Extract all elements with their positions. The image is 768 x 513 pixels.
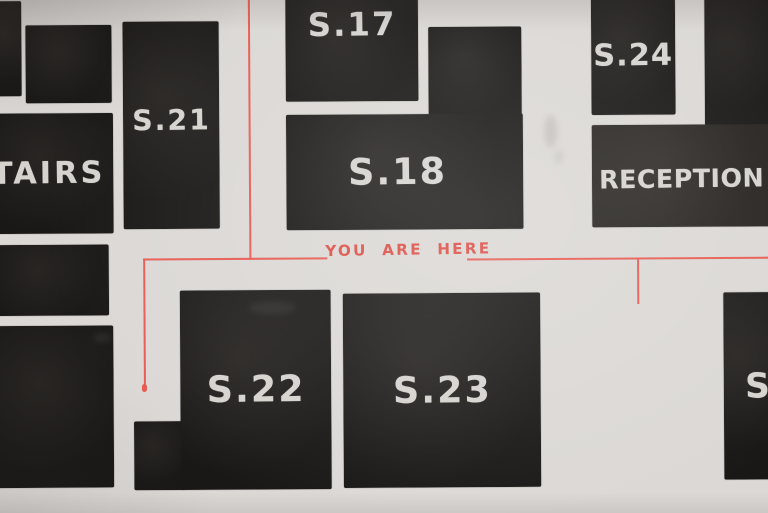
path-down-stub	[637, 257, 639, 304]
room-s24: S.24	[591, 0, 676, 115]
room-reception: RECEPTION	[592, 124, 768, 227]
paint-smudge	[554, 150, 563, 164]
path-horizontal-right-segment	[467, 257, 768, 261]
room-s22-extension	[134, 421, 185, 490]
you-are-here-label: YOU ARE HERE	[325, 240, 469, 261]
room-block-top-left	[0, 1, 22, 96]
path-left-descender	[143, 258, 146, 391]
room-label-s23: S.23	[392, 369, 491, 412]
room-label-s22: S.22	[206, 368, 305, 411]
path-vertical-main	[248, 0, 252, 260]
room-block-bottom-left	[0, 325, 114, 488]
room-s25-partial: S	[723, 292, 768, 480]
paint-smudge	[544, 115, 557, 147]
room-s18-upper-arm	[428, 26, 522, 118]
room-s18: S.18	[286, 113, 524, 230]
room-label-stairs: TAIRS	[0, 155, 106, 192]
room-label-s24: S.24	[593, 37, 673, 73]
paint-smudge	[93, 333, 111, 343]
path-horizontal-left-segment	[143, 257, 327, 260]
room-s22: S.22	[180, 290, 332, 490]
room-s21: S.21	[122, 21, 219, 229]
room-label-s17: S.17	[307, 5, 396, 45]
room-stairs: TAIRS	[0, 113, 114, 234]
floor-plan-map: TAIRS S.21 S.17 S.18 S.24 RECEPTION S.22	[0, 0, 768, 513]
room-label-s25-partial: S	[745, 365, 768, 406]
room-label-s18: S.18	[348, 151, 447, 194]
room-label-reception: RECEPTION	[599, 163, 764, 195]
room-block-mid-left	[0, 245, 109, 317]
room-s17: S.17	[285, 0, 418, 102]
room-s23: S.23	[343, 292, 542, 488]
room-block-top-right-arm	[704, 0, 768, 126]
room-label-s21: S.21	[132, 103, 211, 137]
path-end-dot	[142, 384, 147, 392]
room-block-top-left-2	[25, 25, 111, 103]
map-canvas: TAIRS S.21 S.17 S.18 S.24 RECEPTION S.22	[0, 0, 768, 513]
